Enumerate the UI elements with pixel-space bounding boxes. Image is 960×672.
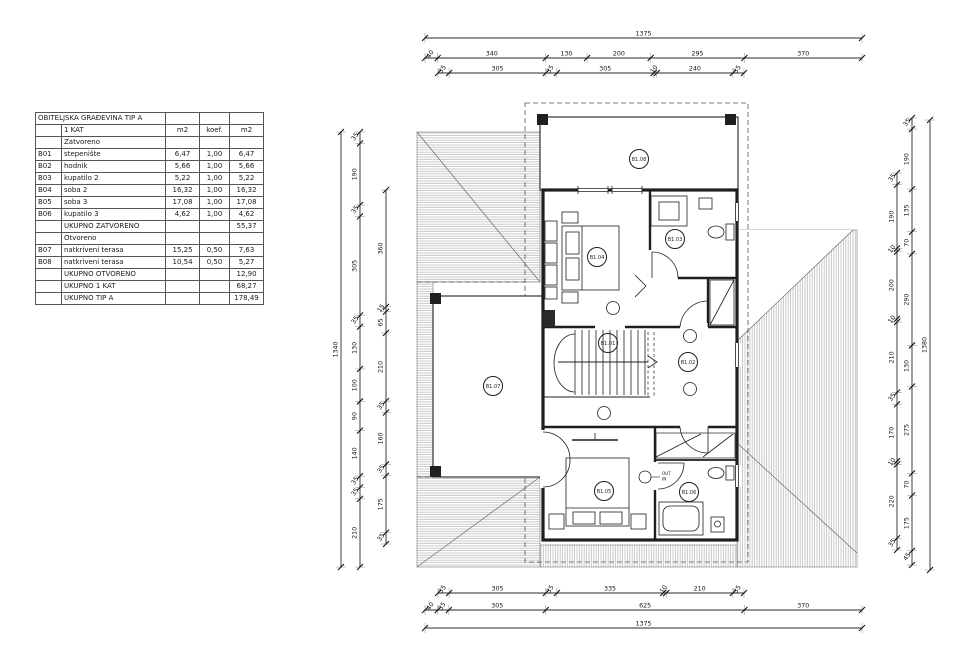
dimension-label: 100	[352, 379, 359, 391]
dimension-label: 305	[599, 66, 611, 73]
dimension-label: 1380	[922, 337, 929, 353]
dim-left-main: 351903530535130100901403535210	[350, 129, 365, 570]
dimension-label: 190	[352, 168, 359, 180]
dimension-label: 210	[889, 351, 896, 363]
dimension-label: 335	[604, 586, 616, 593]
dimension-label: 130	[352, 342, 359, 354]
dim-left-total: 1340	[333, 129, 347, 570]
dimension-label: 210	[352, 527, 359, 539]
dimension-label: 200	[613, 51, 625, 58]
dimension-label: 190	[904, 153, 911, 165]
dim-bottom-inner: 35305353351021035	[435, 584, 747, 598]
floor-plan-drawing: OUT IN B1.01 B1.02 B1.03 B1.04	[0, 0, 960, 672]
dim-right-total: 1380	[922, 117, 936, 573]
dimension-label: 1375	[635, 621, 651, 628]
dimension-label: 175	[378, 498, 385, 510]
dimension-label: 1340	[333, 341, 340, 357]
dim-top-main: 40340130200295370	[422, 49, 865, 63]
dimension-label: 360	[378, 242, 385, 254]
dimension-label: 240	[689, 66, 701, 73]
dimension-label: 45	[902, 552, 912, 563]
dim-right-inner: 351901020010210351701022035	[887, 170, 902, 553]
dimension-label: 160	[378, 432, 385, 444]
svg-text:B1.03: B1.03	[668, 237, 683, 243]
room-bubble-b108: B1.08	[630, 150, 649, 169]
dimension-label: 130	[904, 360, 911, 372]
dimension-label: 370	[797, 51, 809, 58]
terrace-b108	[537, 114, 738, 190]
dimension-label: 220	[889, 495, 896, 507]
svg-text:B1.06: B1.06	[682, 490, 697, 496]
dimension-label: 210	[694, 586, 706, 593]
out-label: OUT	[662, 471, 671, 476]
dimension-label: 340	[486, 51, 498, 58]
building-outer-walls	[543, 190, 737, 540]
dim-bottom-main: 4035305625370	[422, 601, 865, 615]
dimension-label: 135	[904, 204, 911, 216]
svg-text:B1.01: B1.01	[601, 341, 616, 347]
dimension-label: 130	[560, 51, 572, 58]
dimension-label: 175	[904, 517, 911, 529]
dim-top-total: 1375	[422, 31, 865, 44]
drawing-sheet: OBITELJSKA GRAĐEVINA TIP A1 KATm2koef.m2…	[0, 0, 960, 672]
svg-text:B1.02: B1.02	[681, 360, 696, 366]
svg-text:B1.05: B1.05	[597, 489, 612, 495]
dim-right-main: 35190135702901302757017545	[902, 115, 917, 568]
dim-bottom-total: 1375	[422, 621, 865, 634]
dimension-label: 305	[491, 603, 503, 610]
dimension-label: 1375	[635, 31, 651, 38]
dimension-label: 370	[797, 603, 809, 610]
dimension-label: 200	[889, 279, 896, 291]
dimension-label: 90	[352, 412, 359, 420]
dimension-label: 275	[904, 424, 911, 436]
svg-text:B1.08: B1.08	[632, 157, 647, 163]
dimension-label: 170	[889, 427, 896, 439]
dimension-label: 305	[491, 66, 503, 73]
dimension-label: 290	[904, 294, 911, 306]
svg-text:B1.04: B1.04	[590, 255, 605, 261]
dimension-label: 305	[491, 586, 503, 593]
dimension-label: 625	[639, 603, 651, 610]
dimension-label: 210	[378, 361, 385, 373]
svg-text:B1.07: B1.07	[486, 384, 501, 390]
dimension-label: 70	[904, 480, 911, 488]
dimension-label: 140	[352, 447, 359, 459]
dimension-label: 65	[378, 318, 385, 326]
in-label: IN	[662, 477, 666, 482]
dimension-label: 190	[889, 211, 896, 223]
dimension-label: 295	[692, 51, 704, 58]
dim-top-inner: 35305353051024035	[435, 64, 747, 78]
dimension-label: 305	[352, 260, 359, 272]
dim-left-inner: 3601565210351603517535	[376, 187, 391, 547]
dimension-label: 70	[904, 239, 911, 247]
